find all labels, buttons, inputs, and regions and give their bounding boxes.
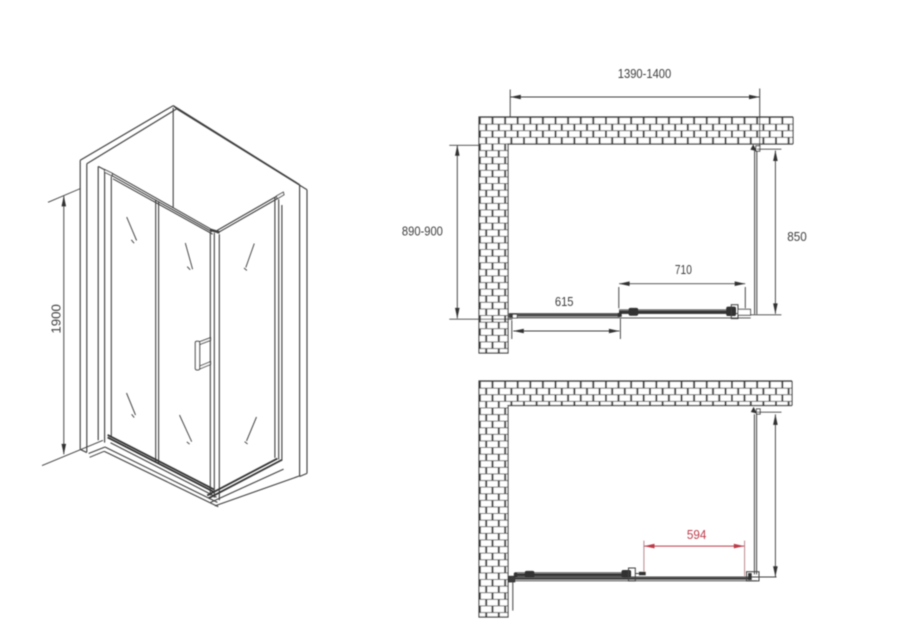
svg-text:710: 710: [675, 262, 692, 277]
svg-text:1390-1400: 1390-1400: [618, 66, 672, 81]
svg-text:1900: 1900: [49, 304, 64, 334]
svg-text:594: 594: [687, 527, 707, 542]
svg-text:615: 615: [555, 294, 574, 309]
svg-text:850: 850: [787, 229, 807, 244]
svg-text:890-900: 890-900: [402, 224, 443, 239]
